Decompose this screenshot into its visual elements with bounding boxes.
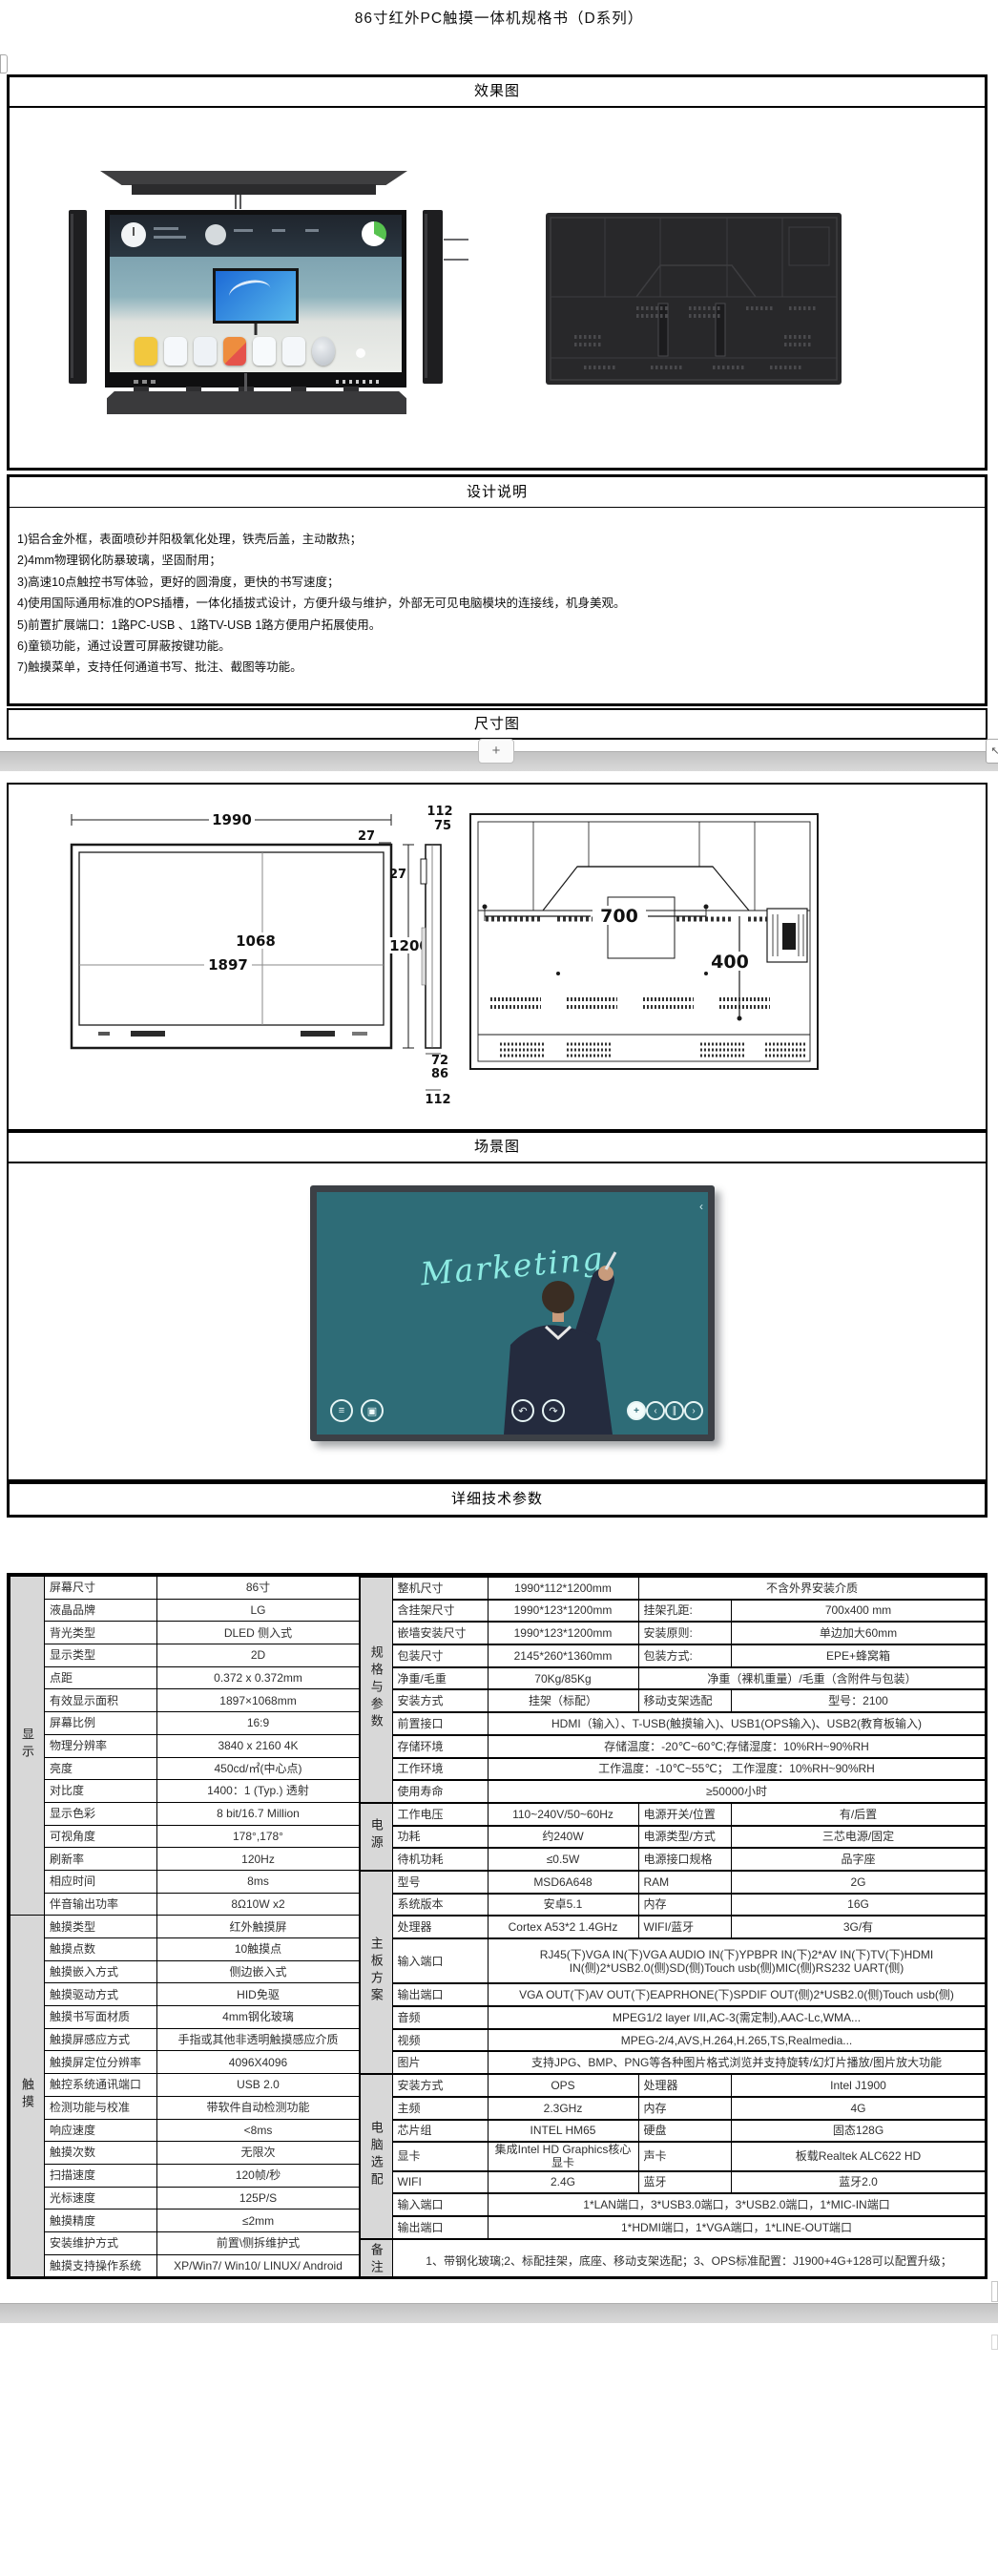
table-row: 电脑选配安装方式OPS处理器Intel J1900 bbox=[360, 2074, 986, 2097]
spec-value: 450cd/㎡(中心点) bbox=[157, 1757, 360, 1780]
spec-value: 存储温度：-20℃~60℃;存储湿度：10%RH~90%RH bbox=[488, 1735, 986, 1758]
spec-value: 1897×1068mm bbox=[157, 1689, 360, 1712]
spec-value: <8ms bbox=[157, 2119, 360, 2142]
table-row: 有效显示面积1897×1068mm bbox=[10, 1689, 360, 1712]
spec-value: 固态128G bbox=[731, 2120, 986, 2143]
table-row: 相应时间8ms bbox=[10, 1870, 360, 1893]
spec-value: RJ45(下)VGA IN(下)VGA AUDIO IN(下)YPBPR IN(… bbox=[488, 1938, 986, 1983]
spec-value: 约240W bbox=[488, 1826, 638, 1849]
spec-attr: 输入端口 bbox=[392, 2193, 488, 2216]
app-icon bbox=[312, 337, 335, 366]
scrollbar-fragment bbox=[991, 2281, 998, 2302]
spec-value: 1、带钢化玻璃;2、标配挂架，底座、移动支架选配；3、OPS标准配置：J1900… bbox=[392, 2239, 986, 2279]
spec-value: 1990*123*1200mm bbox=[488, 1600, 638, 1623]
spec-attr: 音频 bbox=[392, 2006, 488, 2029]
table-row: 工作环境工作温度：-10℃~55℃； 工作湿度：10%RH~90%RH bbox=[360, 1758, 986, 1781]
redo-icon: ↷ bbox=[542, 1399, 565, 1422]
spec-value: 3G/有 bbox=[731, 1916, 986, 1938]
table-row: 液晶品牌LG bbox=[10, 1599, 360, 1622]
spec-attr: 嵌墙安装尺寸 bbox=[392, 1622, 488, 1644]
table-row: 触摸屏感应方式手指或其他非透明触摸感应介质 bbox=[10, 2028, 360, 2051]
dim-depth-bot1: 72 bbox=[431, 1054, 448, 1068]
status-ring-icon bbox=[362, 221, 386, 246]
spec-attr: 对比度 bbox=[45, 1780, 157, 1803]
dim-bezel-right: 27 bbox=[389, 868, 406, 882]
spec-value: ≥50000小时 bbox=[488, 1780, 986, 1803]
section-effect-title: 效果图 bbox=[10, 77, 985, 108]
table-row: 响应速度<8ms bbox=[10, 2119, 360, 2142]
spec-value: 8 bit/16.7 Million bbox=[157, 1802, 360, 1825]
spec-attr: 电源类型/方式 bbox=[638, 1826, 731, 1849]
spec-value: 蓝牙2.0 bbox=[731, 2171, 986, 2194]
dim-depth-bot2: 86 bbox=[431, 1067, 448, 1081]
spec-attr: 蓝牙 bbox=[638, 2171, 731, 2194]
table-row: 电源工作电压110~240V/50~60Hz电源开关/位置有/后置 bbox=[360, 1803, 986, 1826]
spec-attr: 亮度 bbox=[45, 1757, 157, 1780]
spec-attr: 显示类型 bbox=[45, 1644, 157, 1667]
spec-document-page: 86寸红外PC触摸一体机规格书（D系列） 效果图 bbox=[0, 0, 998, 2576]
table-row: 点距0.372 x 0.372mm bbox=[10, 1666, 360, 1689]
scene-toolbar-middle: ↶↷ bbox=[511, 1399, 572, 1422]
spec-attr: 触摸书写面材质 bbox=[45, 2006, 157, 2029]
spec-value: 型号：2100 bbox=[731, 1689, 986, 1712]
table-row: 显示色彩8 bit/16.7 Million bbox=[10, 1802, 360, 1825]
spec-group-label: 备注 bbox=[360, 2239, 392, 2279]
table-row: 规格与参数整机尺寸1990*112*1200mm不含外界安装介质 bbox=[360, 1577, 986, 1600]
table-row: 可视角度178°,178° bbox=[10, 1825, 360, 1848]
spec-attr: 触摸屏感应方式 bbox=[45, 2028, 157, 2051]
design-note: 6)童锁功能，通过设置可屏蔽按键功能。 bbox=[17, 636, 975, 657]
spec-value: INTEL HM65 bbox=[488, 2120, 638, 2143]
spec-value: 净重（裸机重量）/毛重（含附件与包装） bbox=[638, 1667, 986, 1690]
spec-value: 1*HDMI端口，1*VGA端口，1*LINE-OUT端口 bbox=[488, 2216, 986, 2239]
spec-attr: 使用寿命 bbox=[392, 1780, 488, 1803]
spec-value: OPS bbox=[488, 2074, 638, 2097]
table-row: 输出端口VGA OUT(下)AV OUT(下)EAPRHONE(下)SPDIF … bbox=[360, 1983, 986, 2006]
table-row: 屏幕比例16:9 bbox=[10, 1712, 360, 1735]
insert-page-button[interactable]: + bbox=[478, 739, 514, 764]
spec-value: 3840 x 2160 4K bbox=[157, 1734, 360, 1757]
table-row: 含挂架尺寸1990*123*1200mm挂架孔距:700x400 mm bbox=[360, 1600, 986, 1623]
spec-attr: 工作电压 bbox=[392, 1803, 488, 1826]
spec-attr: 触摸点数 bbox=[45, 1938, 157, 1961]
spec-attr: 挂架孔距: bbox=[638, 1600, 731, 1623]
table-row: 触摸点数10触摸点 bbox=[10, 1938, 360, 1961]
page-separator bbox=[0, 2303, 998, 2323]
table-row: 输入端口RJ45(下)VGA IN(下)VGA AUDIO IN(下)YPBPR… bbox=[360, 1938, 986, 1983]
spec-attr: 型号 bbox=[392, 1871, 488, 1894]
spec-attr: 主频 bbox=[392, 2097, 488, 2120]
spec-attr: 电源开关/位置 bbox=[638, 1803, 731, 1826]
dim-vesa-width: 700 bbox=[600, 906, 638, 927]
table-row: 触控系统通讯端口USB 2.0 bbox=[10, 2074, 360, 2097]
spec-value: 2G bbox=[731, 1871, 986, 1894]
spec-value: 86寸 bbox=[157, 1577, 360, 1600]
spec-attr: 触摸屏定位分辨率 bbox=[45, 2051, 157, 2074]
app-icon bbox=[164, 337, 187, 366]
spec-attr: 电源接口规格 bbox=[638, 1848, 731, 1871]
dimension-drawing: 1068 1897 1990 27 27 1200 112 bbox=[7, 783, 988, 1131]
table-row: 净重/毛重70Kg/85Kg净重（裸机重量）/毛重（含附件与包装） bbox=[360, 1667, 986, 1690]
spec-value: 1990*123*1200mm bbox=[488, 1622, 638, 1644]
table-row: 触摸次数无限次 bbox=[10, 2142, 360, 2165]
spec-value: 1990*112*1200mm bbox=[488, 1577, 638, 1600]
menu-icon: ≡ bbox=[330, 1399, 353, 1422]
design-notes: 1)铝合金外框，表面喷砂并阳极氧化处理，铁壳后盖，主动散热； 2)4mm物理钢化… bbox=[10, 508, 985, 679]
top-view-image bbox=[100, 171, 407, 185]
spec-attr: 触摸支持操作系统 bbox=[45, 2254, 157, 2277]
spec-attr: WIFI bbox=[392, 2171, 488, 2194]
spec-value: 8Ω10W x2 bbox=[157, 1893, 360, 1916]
spec-group-label: 电源 bbox=[360, 1803, 392, 1871]
table-row: 使用寿命≥50000小时 bbox=[360, 1780, 986, 1803]
spec-value: 带软件自动检测功能 bbox=[157, 2096, 360, 2119]
spec-attr: 处理器 bbox=[392, 1916, 488, 1938]
spec-attr: 显示色彩 bbox=[45, 1802, 157, 1825]
table-row: 处理器Cortex A53*2 1.4GHzWIFI/蓝牙3G/有 bbox=[360, 1916, 986, 1938]
spec-value: 手指或其他非透明触摸感应介质 bbox=[157, 2028, 360, 2051]
table-row: 包装尺寸2145*260*1360mm包装方式:EPE+蜂窝箱 bbox=[360, 1644, 986, 1667]
dim-bezel-top: 27 bbox=[358, 829, 375, 844]
spec-value: 集成Intel HD Graphics核心显卡 bbox=[488, 2142, 638, 2170]
spec-attr: 扫描速度 bbox=[45, 2164, 157, 2187]
spec-value: MSD6A648 bbox=[488, 1871, 638, 1894]
table-row: 备注1、带钢化玻璃;2、标配挂架，底座、移动支架选配；3、OPS标准配置：J19… bbox=[360, 2239, 986, 2279]
spec-attr: 声卡 bbox=[638, 2142, 731, 2170]
table-row: 触摸驱动方式HID免驱 bbox=[10, 1983, 360, 2006]
spec-attr: 有效显示面积 bbox=[45, 1689, 157, 1712]
spec-value: 侧边嵌入式 bbox=[157, 1960, 360, 1983]
table-row: 主板方案型号MSD6A648RAM2G bbox=[360, 1871, 986, 1894]
app-icon bbox=[135, 337, 157, 366]
table-row: 显示类型2D bbox=[10, 1644, 360, 1667]
table-row: 显示屏幕尺寸86寸 bbox=[10, 1577, 360, 1600]
spec-value: 支持JPG、BMP、PNG等各种图片格式浏览并支持旋转/幻灯片播放/图片放大功能 bbox=[488, 2051, 986, 2074]
spec-attr: 背光类型 bbox=[45, 1622, 157, 1644]
table-row: 芯片组INTEL HM65硬盘固态128G bbox=[360, 2120, 986, 2143]
design-note: 5)前置扩展端口：1路PC-USB 、1路TV-USB 1路方便用户拓展使用。 bbox=[17, 615, 975, 636]
table-row: 扫描速度120帧/秒 bbox=[10, 2164, 360, 2187]
app-icon bbox=[223, 337, 246, 366]
pause-icon: ∥ bbox=[665, 1401, 684, 1420]
spec-group-label: 触摸 bbox=[10, 1916, 45, 2277]
spec-attr: 工作环境 bbox=[392, 1758, 488, 1781]
spec-attr: 伴音输出功率 bbox=[45, 1893, 157, 1916]
spec-value: 1400：1 (Typ.) 透射 bbox=[157, 1780, 360, 1803]
spec-value: Intel J1900 bbox=[731, 2074, 986, 2097]
spec-value: 有/后置 bbox=[731, 1803, 986, 1826]
spec-value: HDMI（输入）、T-USB(触摸输入)、USB1(OPS输入)、USB2(教育… bbox=[488, 1712, 986, 1735]
spec-attr: 包装尺寸 bbox=[392, 1644, 488, 1667]
spec-group-label: 显示 bbox=[10, 1577, 45, 1916]
next-icon: › bbox=[684, 1401, 703, 1420]
speaker-grill bbox=[336, 380, 380, 384]
table-row: 存储环境存储温度：-20℃~60℃;存储湿度：10%RH~90%RH bbox=[360, 1735, 986, 1758]
spec-attr: 安装维护方式 bbox=[45, 2231, 157, 2254]
spec-value: ≤0.5W bbox=[488, 1848, 638, 1871]
spec-attr: 屏幕比例 bbox=[45, 1712, 157, 1735]
spec-attr: 刷新率 bbox=[45, 1848, 157, 1871]
spec-table: 显示屏幕尺寸86寸液晶品牌LG背光类型DLED 侧入式显示类型2D点距0.372… bbox=[7, 1573, 988, 2279]
spec-attr: 触摸精度 bbox=[45, 2209, 157, 2232]
table-row: 物理分辨率3840 x 2160 4K bbox=[10, 1734, 360, 1757]
design-note: 4)使用国际通用标准的OPS插槽，一体化插拔式设计，方便升级与维护，外部无可见电… bbox=[17, 593, 975, 614]
spec-value: 4G bbox=[731, 2097, 986, 2120]
table-row: 待机功耗≤0.5W电源接口规格品字座 bbox=[360, 1848, 986, 1871]
add-icon: + bbox=[627, 1401, 646, 1420]
spec-attr: 含挂架尺寸 bbox=[392, 1600, 488, 1623]
spec-value: 2145*260*1360mm bbox=[488, 1644, 638, 1667]
spec-group-label: 规格与参数 bbox=[360, 1577, 392, 1803]
dim-overall-width: 1990 bbox=[212, 811, 252, 828]
spec-attr: 整机尺寸 bbox=[392, 1577, 488, 1600]
spec-attr: 待机功耗 bbox=[392, 1848, 488, 1871]
spec-value: 16:9 bbox=[157, 1712, 360, 1735]
undo-icon: ↶ bbox=[511, 1399, 534, 1422]
spec-value: 120帧/秒 bbox=[157, 2164, 360, 2187]
design-note: 3)高速10点触控书写体验，更好的圆滑度，更快的书写速度； bbox=[17, 572, 975, 593]
spec-value: HID免驱 bbox=[157, 1983, 360, 2006]
page-title: 86寸红外PC触摸一体机规格书（D系列） bbox=[0, 7, 998, 28]
spec-attr: 移动支架选配 bbox=[638, 1689, 731, 1712]
spec-attr: 处理器 bbox=[638, 2074, 731, 2097]
spec-attr: 包装方式: bbox=[638, 1644, 731, 1667]
spec-attr: 输出端口 bbox=[392, 1983, 488, 2006]
table-row: 触摸触摸类型红外触摸屏 bbox=[10, 1916, 360, 1938]
spec-value: 板载Realtek ALC622 HD bbox=[731, 2142, 986, 2170]
spec-group-label: 主板方案 bbox=[360, 1871, 392, 2074]
spec-value: Cortex A53*2 1.4GHz bbox=[488, 1916, 638, 1938]
spec-value: 前置\侧拆维护式 bbox=[157, 2231, 360, 2254]
spec-value: 红外触摸屏 bbox=[157, 1916, 360, 1938]
ruler-tab bbox=[0, 54, 8, 73]
spec-value: VGA OUT(下)AV OUT(下)EAPRHONE(下)SPDIF OUT(… bbox=[488, 1983, 986, 2006]
home-dot-icon bbox=[356, 348, 365, 358]
spec-attr: 触摸次数 bbox=[45, 2142, 157, 2165]
spec-value: 2.3GHz bbox=[488, 2097, 638, 2120]
spec-attr: 相应时间 bbox=[45, 1870, 157, 1893]
scene-toolbar-right: +‹∥› bbox=[627, 1401, 703, 1420]
table-row: 触摸精度≤2mm bbox=[10, 2209, 360, 2232]
spec-attr: 前置接口 bbox=[392, 1712, 488, 1735]
spec-attr: 液晶品牌 bbox=[45, 1599, 157, 1622]
spec-table-right: 规格与参数整机尺寸1990*112*1200mm不含外界安装介质含挂架尺寸199… bbox=[359, 1576, 987, 2279]
table-row: 系统版本安卓5.1内存16G bbox=[360, 1894, 986, 1916]
spec-attr: 图片 bbox=[392, 2051, 488, 2074]
table-row: 音频MPEG1/2 layer I/II,AC-3(需定制),AAC-Lc,WM… bbox=[360, 2006, 986, 2029]
rear-view-image bbox=[546, 213, 842, 385]
section-specs-title: 详细技术参数 bbox=[7, 1481, 988, 1518]
prev-icon: ‹ bbox=[646, 1401, 665, 1420]
spec-attr: WIFI/蓝牙 bbox=[638, 1916, 731, 1938]
spec-value: 无限次 bbox=[157, 2142, 360, 2165]
spec-value: 16G bbox=[731, 1894, 986, 1916]
spec-value: MPEG-2/4,AVS,H.264,H.265,TS,Realmedia... bbox=[488, 2029, 986, 2052]
table-row: 图片支持JPG、BMP、PNG等各种图片格式浏览并支持旋转/幻灯片播放/图片放大… bbox=[360, 2051, 986, 2074]
spec-value: 178°,178° bbox=[157, 1825, 360, 1848]
table-row: 主频2.3GHz内存4G bbox=[360, 2097, 986, 2120]
spec-group-label: 电脑选配 bbox=[360, 2074, 392, 2238]
spec-attr: 硬盘 bbox=[638, 2120, 731, 2143]
dim-active-height: 1068 bbox=[236, 932, 276, 950]
app-icon bbox=[194, 337, 217, 366]
dim-vesa-height: 400 bbox=[711, 952, 749, 973]
spec-attr: 可视角度 bbox=[45, 1825, 157, 1848]
table-row: 功耗约240W电源类型/方式三芯电源/固定 bbox=[360, 1826, 986, 1849]
table-row: 安装维护方式前置\侧拆维护式 bbox=[10, 2231, 360, 2254]
table-row: 刷新率120Hz bbox=[10, 1848, 360, 1871]
spec-value: 品字座 bbox=[731, 1848, 986, 1871]
table-row: 检测功能与校准带软件自动检测功能 bbox=[10, 2096, 360, 2119]
spec-attr: 安装方式 bbox=[392, 2074, 488, 2097]
spec-attr: 光标速度 bbox=[45, 2187, 157, 2209]
collapse-margin-button[interactable]: ↖ bbox=[986, 739, 998, 764]
presenter-silhouette bbox=[317, 1192, 708, 1435]
table-row: 光标速度125P/S bbox=[10, 2187, 360, 2209]
scene-toolbar-left: ≡▣ bbox=[330, 1399, 391, 1422]
scene-image: Marketing ‹ ≡▣ ↶↷ +‹∥› bbox=[310, 1185, 715, 1441]
section-dimension-title: 尺寸图 bbox=[7, 708, 988, 740]
table-row: 触摸嵌入方式侧边嵌入式 bbox=[10, 1960, 360, 1983]
spec-attr: 内存 bbox=[638, 1894, 731, 1916]
section-scene-title: 场景图 bbox=[7, 1131, 988, 1163]
product-renderings bbox=[10, 108, 985, 472]
dim-active-width: 1897 bbox=[208, 956, 248, 974]
spec-value: 125P/S bbox=[157, 2187, 360, 2209]
table-row: WIFI2.4G蓝牙蓝牙2.0 bbox=[360, 2171, 986, 2194]
spec-attr: 触摸嵌入方式 bbox=[45, 1960, 157, 1983]
spec-value: 单边加大60mm bbox=[731, 1622, 986, 1644]
table-row: 触摸书写面材质4mm钢化玻璃 bbox=[10, 2006, 360, 2029]
spec-attr: 安装原则: bbox=[638, 1622, 731, 1644]
dim-depth-bot3: 112 bbox=[425, 1093, 450, 1107]
spec-attr: 视频 bbox=[392, 2029, 488, 2052]
spec-attr: 显卡 bbox=[392, 2142, 488, 2170]
table-row: 伴音输出功率8Ω10W x2 bbox=[10, 1893, 360, 1916]
design-note: 1)铝合金外框，表面喷砂并阳极氧化处理，铁壳后盖，主动散热； bbox=[17, 529, 975, 550]
spec-value: 不含外界安装介质 bbox=[638, 1577, 986, 1600]
spec-value: DLED 侧入式 bbox=[157, 1622, 360, 1644]
spec-table-left: 显示屏幕尺寸86寸液晶品牌LG背光类型DLED 侧入式显示类型2D点距0.372… bbox=[10, 1576, 360, 2277]
embedded-monitor-image bbox=[213, 268, 299, 324]
spec-value: 0.372 x 0.372mm bbox=[157, 1666, 360, 1689]
spec-value: 1*LAN端口，3*USB3.0端口，3*USB2.0端口，1*MIC-IN端口 bbox=[488, 2193, 986, 2216]
spec-attr: 屏幕尺寸 bbox=[45, 1577, 157, 1600]
table-row: 输出端口1*HDMI端口，1*VGA端口，1*LINE-OUT端口 bbox=[360, 2216, 986, 2239]
table-row: 嵌墙安装尺寸1990*123*1200mm安装原则:单边加大60mm bbox=[360, 1622, 986, 1644]
section-design: 设计说明 1)铝合金外框，表面喷砂并阳极氧化处理，铁壳后盖，主动散热； 2)4m… bbox=[7, 474, 988, 706]
spec-value: 挂架（标配） bbox=[488, 1689, 638, 1712]
spec-attr: 触摸驱动方式 bbox=[45, 1983, 157, 2006]
spec-attr: 存储环境 bbox=[392, 1735, 488, 1758]
spec-attr: 芯片组 bbox=[392, 2120, 488, 2143]
spec-value: 120Hz bbox=[157, 1848, 360, 1871]
design-note: 7)触摸菜单，支持任何通道书写、批注、截图等功能。 bbox=[17, 657, 975, 678]
spec-value: 10触摸点 bbox=[157, 1938, 360, 1961]
spec-attr: 输入端口 bbox=[392, 1938, 488, 1983]
spec-attr: 触摸类型 bbox=[45, 1916, 157, 1938]
dim-depth-total: 112 bbox=[426, 805, 452, 819]
table-row: 前置接口HDMI（输入）、T-USB(触摸输入)、USB1(OPS输入)、USB… bbox=[360, 1712, 986, 1735]
table-row: 触摸屏定位分辨率4096X4096 bbox=[10, 2051, 360, 2074]
spec-attr: 物理分辨率 bbox=[45, 1734, 157, 1757]
right-side-view-image bbox=[423, 210, 443, 384]
spec-attr: 安装方式 bbox=[392, 1689, 488, 1712]
section-design-title: 设计说明 bbox=[10, 477, 985, 508]
spec-attr: 功耗 bbox=[392, 1826, 488, 1849]
table-row: 显卡集成Intel HD Graphics核心显卡声卡板载Realtek ALC… bbox=[360, 2142, 986, 2170]
spec-value: XP/Win7/ Win10/ LINUX/ Android bbox=[157, 2254, 360, 2277]
section-effect: 效果图 bbox=[7, 74, 988, 471]
front-logo bbox=[134, 380, 158, 384]
spec-value: 70Kg/85Kg bbox=[488, 1667, 638, 1690]
spec-attr: 检测功能与校准 bbox=[45, 2096, 157, 2119]
spec-attr: 净重/毛重 bbox=[392, 1667, 488, 1690]
app-icon bbox=[282, 337, 305, 366]
table-row: 亮度450cd/㎡(中心点) bbox=[10, 1757, 360, 1780]
dim-depth-body: 75 bbox=[434, 819, 451, 833]
spec-value: 2.4G bbox=[488, 2171, 638, 2194]
design-note: 2)4mm物理钢化防暴玻璃，坚固耐用； bbox=[17, 550, 975, 571]
spec-value: 700x400 mm bbox=[731, 1600, 986, 1623]
spec-value: 2D bbox=[157, 1644, 360, 1667]
spec-attr: 内存 bbox=[638, 2097, 731, 2120]
left-side-view-image bbox=[69, 210, 87, 384]
app-icon bbox=[253, 337, 276, 366]
spec-attr: 点距 bbox=[45, 1666, 157, 1689]
spec-value: 4mm钢化玻璃 bbox=[157, 2006, 360, 2029]
spec-value: 4096X4096 bbox=[157, 2051, 360, 2074]
table-row: 背光类型DLED 侧入式 bbox=[10, 1622, 360, 1644]
table-row: 输入端口1*LAN端口，3*USB3.0端口，3*USB2.0端口，1*MIC-… bbox=[360, 2193, 986, 2216]
scrollbar-fragment bbox=[991, 2335, 998, 2350]
app-dock bbox=[135, 337, 335, 366]
spec-value: USB 2.0 bbox=[157, 2074, 360, 2097]
dimension-svg: 1068 1897 1990 27 27 1200 112 bbox=[9, 785, 986, 1129]
spec-attr: 响应速度 bbox=[45, 2119, 157, 2142]
chevron-left-icon: ‹ bbox=[699, 1200, 703, 1213]
weather-icon bbox=[205, 224, 226, 245]
wall-bracket-image bbox=[107, 391, 406, 414]
spec-value: 工作温度：-10℃~55℃； 工作湿度：10%RH~90%RH bbox=[488, 1758, 986, 1781]
spec-value: EPE+蜂窝箱 bbox=[731, 1644, 986, 1667]
spec-value: 三芯电源/固定 bbox=[731, 1826, 986, 1849]
table-row: 触摸支持操作系统XP/Win7/ Win10/ LINUX/ Android bbox=[10, 2254, 360, 2277]
spec-value: MPEG1/2 layer I/II,AC-3(需定制),AAC-Lc,WMA.… bbox=[488, 2006, 986, 2029]
clock-icon bbox=[121, 222, 146, 247]
spec-attr: 输出端口 bbox=[392, 2216, 488, 2239]
spec-attr: 系统版本 bbox=[392, 1894, 488, 1916]
spec-attr: RAM bbox=[638, 1871, 731, 1894]
spec-attr: 触控系统通讯端口 bbox=[45, 2074, 157, 2097]
spec-value: 安卓5.1 bbox=[488, 1894, 638, 1916]
image-icon: ▣ bbox=[361, 1399, 384, 1422]
table-row: 视频MPEG-2/4,AVS,H.264,H.265,TS,Realmedia.… bbox=[360, 2029, 986, 2052]
spec-value: LG bbox=[157, 1599, 360, 1622]
front-view-image bbox=[105, 210, 406, 387]
spec-value: 8ms bbox=[157, 1870, 360, 1893]
spec-value: ≤2mm bbox=[157, 2209, 360, 2232]
table-row: 对比度1400：1 (Typ.) 透射 bbox=[10, 1780, 360, 1803]
spec-value: 110~240V/50~60Hz bbox=[488, 1803, 638, 1826]
table-row: 安装方式挂架（标配）移动支架选配型号：2100 bbox=[360, 1689, 986, 1712]
